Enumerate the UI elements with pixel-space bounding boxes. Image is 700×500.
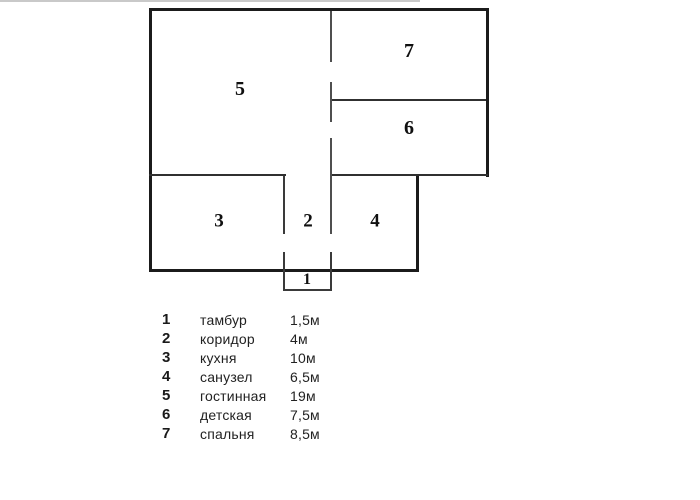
- wall-room4-right: [416, 174, 419, 272]
- wall-outer-left: [149, 8, 152, 272]
- legend-room-name: коридор: [200, 331, 290, 347]
- legend-room-name: спальня: [200, 426, 290, 442]
- legend-room-name: детская: [200, 407, 290, 423]
- legend-row-1: 1 тамбур 1,5м: [158, 310, 320, 329]
- wall-tambour-left: [283, 252, 285, 291]
- floor-plan-page: 5 7 6 3 2 4 1 1 тамбур 1,5м 2 коридор 4м…: [0, 0, 700, 500]
- wall-tambour-right: [330, 252, 332, 291]
- room-4-label: 4: [370, 212, 380, 231]
- legend-room-name: санузел: [200, 369, 290, 385]
- legend-row-4: 4 санузел 6,5м: [158, 367, 320, 386]
- legend-room-number: 3: [158, 349, 200, 366]
- legend-room-name: гостинная: [200, 388, 290, 404]
- wall-corridor-right-segment-lower: [330, 138, 332, 234]
- legend-room-number: 2: [158, 330, 200, 347]
- wall-corridor-right-segment-middle: [330, 82, 332, 122]
- legend-room-area: 1,5м: [290, 312, 320, 328]
- legend-room-number: 7: [158, 425, 200, 442]
- wall-corridor-left: [283, 176, 285, 234]
- legend-row-7: 7 спальня 8,5м: [158, 424, 320, 443]
- legend-row-6: 6 детская 7,5м: [158, 405, 320, 424]
- legend-room-area: 19м: [290, 388, 320, 404]
- room-7-label: 7: [404, 41, 414, 61]
- wall-corridor-right-segment-top: [330, 11, 332, 62]
- wall-outer-top: [149, 8, 489, 11]
- legend-room-name: кухня: [200, 350, 290, 366]
- wall-outer-right-upper: [486, 8, 489, 177]
- legend-room-area: 10м: [290, 350, 320, 366]
- legend-room-number: 4: [158, 368, 200, 385]
- wall-tambour-bottom: [283, 289, 332, 291]
- room-5-label: 5: [235, 79, 245, 99]
- legend-room-number: 5: [158, 387, 200, 404]
- legend-room-number: 1: [158, 311, 200, 328]
- room-6-label: 6: [404, 118, 414, 138]
- room-3-label: 3: [214, 212, 224, 231]
- room-2-label: 2: [303, 212, 313, 231]
- legend-room-area: 7,5м: [290, 407, 320, 423]
- wall-divider-room7-room6: [331, 99, 486, 101]
- wall-room5-bottom: [149, 174, 286, 176]
- legend-room-area: 6,5м: [290, 369, 320, 385]
- legend-row-3: 3 кухня 10м: [158, 348, 320, 367]
- legend-room-area: 8,5м: [290, 426, 320, 442]
- legend-room-name: тамбур: [200, 312, 290, 328]
- legend-room-area: 4м: [290, 331, 320, 347]
- floor-plan-diagram: 5 7 6 3 2 4 1: [0, 0, 700, 500]
- wall-room6-bottom: [331, 174, 488, 176]
- legend-row-5: 5 гостинная 19м: [158, 386, 320, 405]
- room-legend: 1 тамбур 1,5м 2 коридор 4м 3 кухня 10м 4…: [158, 310, 320, 443]
- room-1-label: 1: [303, 272, 311, 288]
- legend-room-number: 6: [158, 406, 200, 423]
- legend-row-2: 2 коридор 4м: [158, 329, 320, 348]
